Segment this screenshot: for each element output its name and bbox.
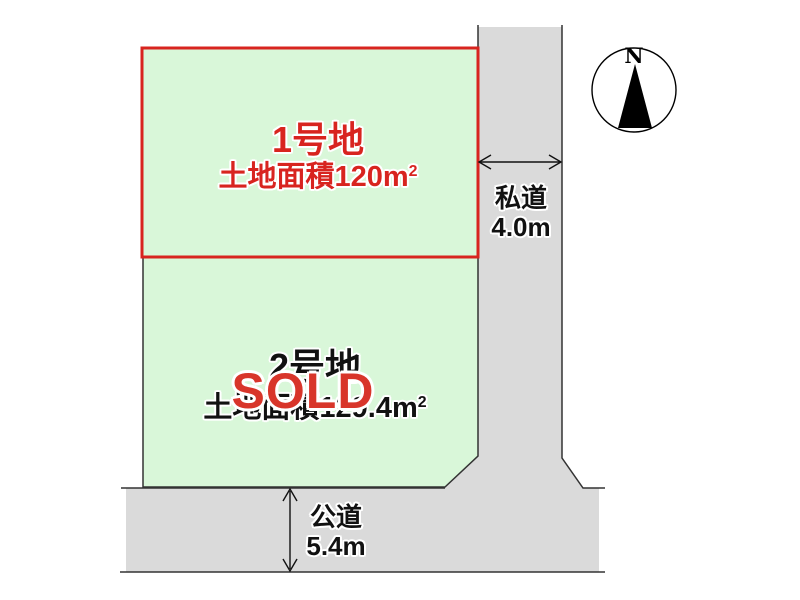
plot1-area-exponent: 2: [409, 163, 418, 180]
compass-north-label: N: [624, 45, 643, 66]
plot1-area: 土地面積120m2: [218, 163, 417, 192]
private-road-label: 私道 4.0m: [491, 184, 550, 242]
plot1-area-unit: m: [383, 161, 409, 193]
public-road-width: 5.4m: [306, 532, 365, 561]
public-road-label: 公道 5.4m: [306, 503, 365, 561]
private-road-width: 4.0m: [491, 213, 550, 242]
plot2-area-unit: m: [392, 392, 418, 424]
plot1-name: 1号地: [272, 122, 364, 158]
diagram-canvas: [0, 0, 800, 600]
public-road-name: 公道: [306, 503, 365, 532]
land-plot-diagram: N 1号地 土地面積120m2 2号地 土地面積129.4m2 SOLD 私道 …: [0, 0, 800, 600]
plot1-area-text: 土地面積120: [218, 161, 382, 193]
private-road-name: 私道: [491, 184, 550, 213]
plot2-area-exponent: 2: [418, 394, 427, 411]
sold-badge: SOLD: [232, 366, 375, 416]
